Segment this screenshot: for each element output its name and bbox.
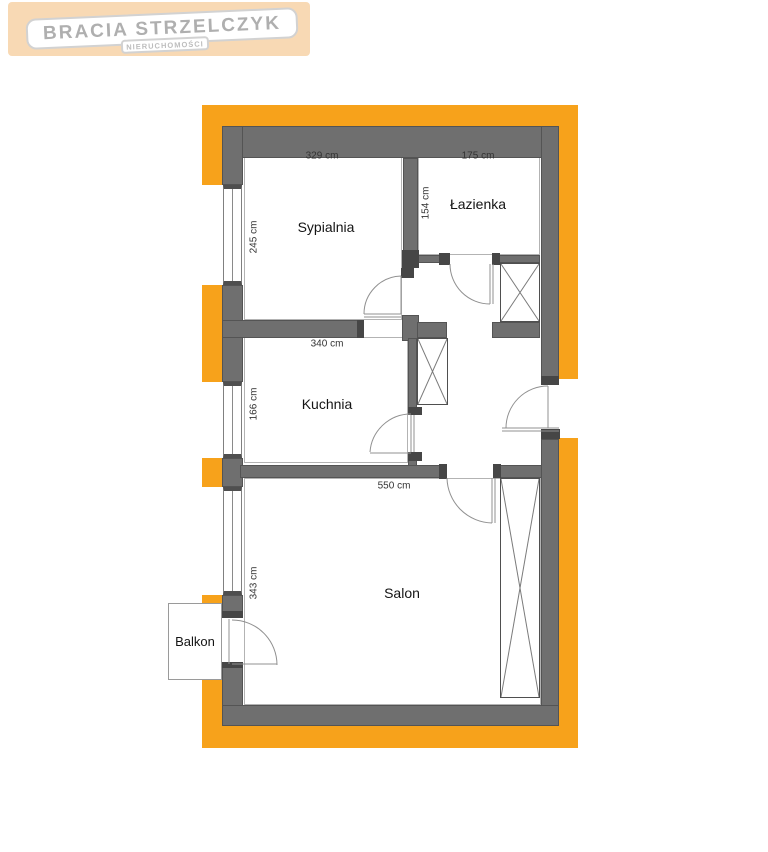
room-label-kuchnia: Kuchnia xyxy=(302,396,353,412)
dim-kuchnia-width: 340 cm xyxy=(311,339,344,350)
agency-logo-subplaque: NIERUCHOMOŚCI xyxy=(121,36,210,54)
jamb-cap xyxy=(222,611,243,618)
room-label-salon: Salon xyxy=(384,585,420,601)
frame-right-upper xyxy=(559,105,578,379)
jamb-cap xyxy=(439,464,447,479)
window-sypialnia-icon xyxy=(223,185,242,285)
wall-sypialnia-kuchnia xyxy=(222,320,363,338)
wall-under-shaft xyxy=(492,322,540,338)
wall-left-a xyxy=(222,126,243,185)
dim-sypialnia-depth: 245 cm xyxy=(249,221,260,254)
agency-logo-subtitle: NIERUCHOMOŚCI xyxy=(126,39,204,51)
jamb-cap xyxy=(402,250,419,268)
closet-box-hall-upper xyxy=(500,263,540,322)
wall-hall-top xyxy=(417,322,447,338)
jamb-cap xyxy=(357,320,364,338)
jamb-cap xyxy=(541,429,560,439)
wall-salon-top-a xyxy=(240,465,447,478)
dim-salon-depth: 343 cm xyxy=(249,567,260,600)
dim-kuchnia-depth: 166 cm xyxy=(249,388,260,421)
frame-left-seg1 xyxy=(202,105,222,185)
wall-kuchnia-right-a xyxy=(408,338,417,410)
dim-lazienka-depth: 154 cm xyxy=(421,187,432,220)
jamb-cap xyxy=(439,253,450,265)
jamb-cap xyxy=(493,464,501,478)
door-lazienka xyxy=(450,264,493,304)
frame-bottom xyxy=(202,726,578,748)
dim-lazienka-width: 175 cm xyxy=(462,151,495,162)
jamb-cap xyxy=(222,662,243,668)
room-label-sypialnia: Sypialnia xyxy=(298,219,355,235)
door-entry xyxy=(502,386,559,431)
wall-sypialnia-lazienka xyxy=(403,158,418,255)
agency-logo: BRACIA STRZELCZYK NIERUCHOMOŚCI xyxy=(8,2,310,56)
frame-left-seg3 xyxy=(202,458,222,487)
frame-left-seg2 xyxy=(202,285,222,382)
window-pane xyxy=(232,386,233,454)
floorplan-page: BRACIA STRZELCZYK NIERUCHOMOŚCI Balkon xyxy=(0,0,768,852)
jamb-cap xyxy=(492,253,500,265)
window-kuchnia-icon xyxy=(223,382,242,458)
jamb-cap xyxy=(401,268,414,278)
wall-bottom xyxy=(222,705,559,726)
wall-right-lower xyxy=(541,439,559,726)
balcony-outline: Balkon xyxy=(168,603,222,680)
jamb-cap xyxy=(541,376,559,385)
window-salon-icon xyxy=(223,487,242,595)
closet-box-hall-lower xyxy=(417,338,448,405)
room-label-balkon: Balkon xyxy=(175,634,215,649)
frame-right-lower xyxy=(559,438,578,748)
dim-salon-width: 550 cm xyxy=(378,481,411,492)
dim-sypialnia-width: 329 cm xyxy=(306,151,339,162)
window-pane xyxy=(232,491,233,591)
closet-box-salon xyxy=(500,478,540,698)
window-pane xyxy=(232,189,233,281)
jamb-cap xyxy=(408,452,422,461)
wall-top xyxy=(222,126,559,158)
room-label-lazienka: Łazienka xyxy=(450,196,506,212)
wall-right-upper xyxy=(541,126,559,385)
jamb-cap xyxy=(408,407,422,415)
